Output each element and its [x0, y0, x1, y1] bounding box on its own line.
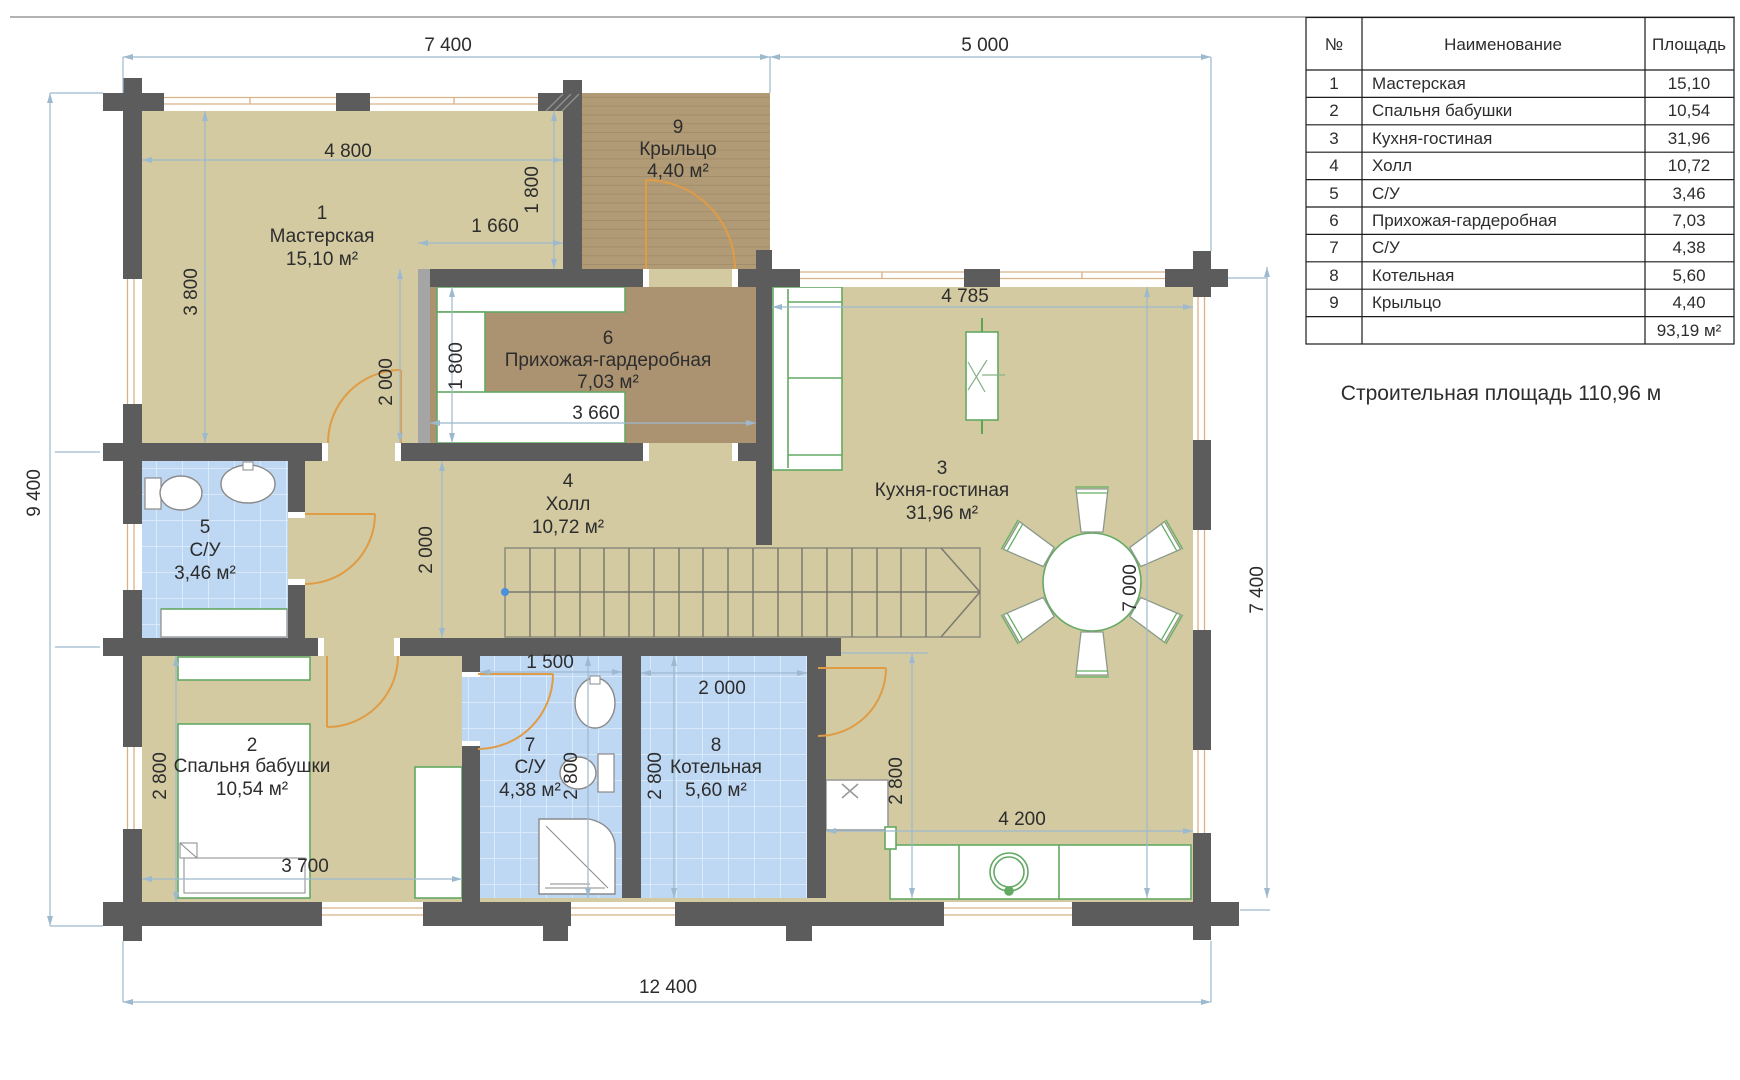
svg-text:Крыльцо: Крыльцо	[639, 139, 717, 160]
svg-text:15,10 м²: 15,10 м²	[286, 249, 358, 270]
svg-text:1 800: 1 800	[446, 342, 467, 390]
svg-text:Спальня бабушки: Спальня бабушки	[174, 756, 331, 777]
svg-text:10,54 м²: 10,54 м²	[216, 779, 288, 800]
svg-text:4,40 м²: 4,40 м²	[647, 161, 709, 182]
svg-text:3 800: 3 800	[181, 268, 202, 316]
svg-text:6: 6	[603, 328, 614, 349]
svg-text:7: 7	[525, 735, 536, 756]
svg-text:2: 2	[1329, 101, 1338, 120]
svg-text:Площадь: Площадь	[1652, 35, 1726, 54]
svg-text:2 800: 2 800	[561, 752, 582, 800]
svg-text:2 000: 2 000	[376, 358, 397, 406]
svg-text:Прихожая-гардеробная: Прихожая-гардеробная	[505, 350, 712, 371]
svg-text:7 400: 7 400	[1247, 566, 1268, 614]
svg-text:1 800: 1 800	[522, 166, 543, 214]
svg-text:4: 4	[563, 471, 574, 492]
svg-text:8: 8	[1329, 266, 1338, 285]
svg-text:1 500: 1 500	[526, 652, 574, 673]
svg-text:4 785: 4 785	[941, 286, 989, 307]
svg-text:Кухня-гостиная: Кухня-гостиная	[1372, 129, 1492, 148]
svg-text:Строительная площадь 110,96 м: Строительная площадь 110,96 м	[1341, 382, 1661, 405]
svg-text:8: 8	[711, 735, 722, 756]
svg-text:3 660: 3 660	[572, 403, 620, 424]
svg-text:10,72 м²: 10,72 м²	[532, 517, 604, 538]
svg-text:5 000: 5 000	[961, 35, 1009, 56]
svg-text:1: 1	[1329, 74, 1338, 93]
svg-text:3: 3	[1329, 129, 1338, 148]
svg-text:10,54: 10,54	[1668, 101, 1711, 120]
svg-text:Мастерская: Мастерская	[270, 226, 375, 247]
svg-text:7 000: 7 000	[1120, 564, 1141, 612]
svg-text:Прихожая-гардеробная: Прихожая-гардеробная	[1372, 211, 1557, 230]
svg-text:2 000: 2 000	[416, 526, 437, 574]
svg-text:2 000: 2 000	[698, 678, 746, 699]
svg-text:Наименование: Наименование	[1444, 35, 1562, 54]
svg-text:4 800: 4 800	[324, 141, 372, 162]
svg-text:Мастерская: Мастерская	[1372, 74, 1466, 93]
svg-text:1: 1	[317, 203, 328, 224]
svg-text:4,40: 4,40	[1672, 293, 1705, 312]
svg-text:С/У: С/У	[189, 540, 221, 561]
svg-text:Котельная: Котельная	[670, 757, 762, 778]
svg-text:3: 3	[937, 458, 948, 479]
svg-text:2 800: 2 800	[886, 757, 907, 805]
svg-text:Кухня-гостиная: Кухня-гостиная	[875, 480, 1009, 501]
svg-text:Котельная: Котельная	[1372, 266, 1454, 285]
svg-text:С/У: С/У	[1372, 238, 1400, 257]
svg-text:7,03 м²: 7,03 м²	[577, 372, 639, 393]
svg-text:10,72: 10,72	[1668, 156, 1711, 175]
svg-text:4,38 м²: 4,38 м²	[499, 780, 561, 801]
svg-text:7,03: 7,03	[1672, 211, 1705, 230]
svg-text:7: 7	[1329, 238, 1338, 257]
svg-text:9: 9	[673, 117, 684, 138]
svg-text:6: 6	[1329, 211, 1338, 230]
svg-text:9: 9	[1329, 293, 1338, 312]
svg-text:3,46: 3,46	[1672, 184, 1705, 203]
svg-text:1 660: 1 660	[471, 216, 519, 237]
svg-text:7 400: 7 400	[424, 35, 472, 56]
svg-text:3,46 м²: 3,46 м²	[174, 563, 236, 584]
svg-text:4: 4	[1329, 156, 1338, 175]
svg-text:3 700: 3 700	[281, 856, 329, 877]
svg-text:С/У: С/У	[1372, 184, 1400, 203]
svg-text:5,60: 5,60	[1672, 266, 1705, 285]
svg-text:31,96: 31,96	[1668, 129, 1711, 148]
svg-text:С/У: С/У	[514, 757, 546, 778]
svg-text:№: №	[1325, 35, 1343, 54]
svg-text:5,60 м²: 5,60 м²	[685, 780, 747, 801]
svg-text:9 400: 9 400	[24, 469, 45, 517]
svg-text:Холл: Холл	[546, 494, 591, 515]
svg-text:Крыльцо: Крыльцо	[1372, 293, 1441, 312]
svg-text:93,19 м²: 93,19 м²	[1657, 321, 1722, 340]
svg-text:15,10: 15,10	[1668, 74, 1711, 93]
svg-text:4 200: 4 200	[998, 809, 1046, 830]
svg-text:4,38: 4,38	[1672, 238, 1705, 257]
svg-text:31,96 м²: 31,96 м²	[906, 503, 978, 524]
svg-text:2: 2	[247, 735, 258, 756]
svg-text:2 800: 2 800	[150, 752, 171, 800]
svg-text:5: 5	[1329, 184, 1338, 203]
svg-text:5: 5	[200, 517, 211, 538]
svg-text:12 400: 12 400	[639, 977, 697, 998]
svg-text:Холл: Холл	[1372, 156, 1412, 175]
svg-text:2 800: 2 800	[645, 752, 666, 800]
svg-text:Спальня бабушки: Спальня бабушки	[1372, 101, 1512, 120]
